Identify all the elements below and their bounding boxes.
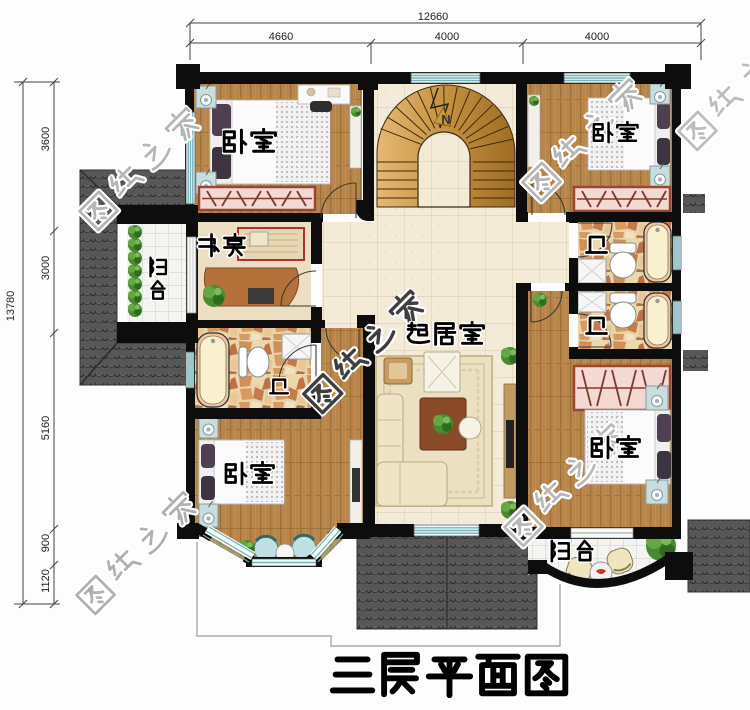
svg-text:3600: 3600 <box>40 127 52 151</box>
svg-text:3000: 3000 <box>40 256 52 280</box>
svg-text:4000: 4000 <box>585 31 609 43</box>
svg-text:N: N <box>441 112 450 127</box>
svg-text:5160: 5160 <box>40 416 52 440</box>
svg-text:13780: 13780 <box>5 291 17 322</box>
svg-text:900: 900 <box>40 534 52 552</box>
svg-text:4000: 4000 <box>435 31 459 43</box>
svg-text:12660: 12660 <box>418 11 449 23</box>
svg-text:4660: 4660 <box>269 31 293 43</box>
svg-text:1120: 1120 <box>40 569 52 593</box>
